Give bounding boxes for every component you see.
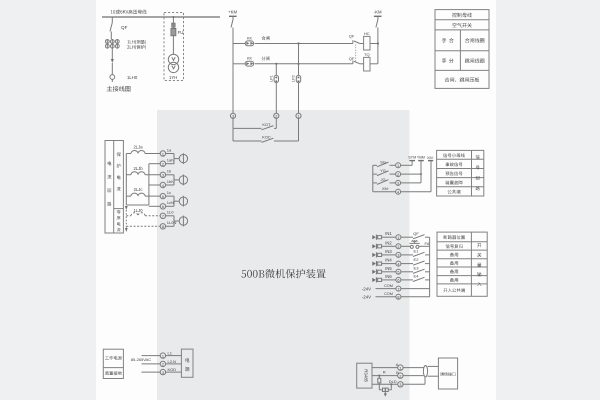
svg-text:-24V: -24V [362, 295, 371, 300]
svg-text:L1: L1 [168, 351, 173, 356]
svg-text:1: 1 [297, 115, 299, 119]
svg-text:SG: SG [380, 159, 386, 164]
svg-text:JG: JG [380, 177, 385, 182]
svg-text:4: 4 [397, 191, 399, 195]
svg-text:2: 2 [399, 374, 401, 378]
svg-text:1: 1 [397, 164, 399, 168]
svg-text:7: 7 [397, 287, 399, 291]
svg-text:2: 2 [397, 245, 399, 249]
svg-text:-24V: -24V [362, 286, 371, 291]
svg-text:E4: E4 [414, 274, 420, 279]
svg-text:1a: 1a [167, 147, 172, 152]
svg-text:QF: QF [349, 56, 355, 61]
svg-text:1L0: 1L0 [167, 210, 174, 215]
svg-text:FU: FU [178, 30, 184, 35]
svg-text:1aN: 1aN [167, 158, 174, 163]
svg-text:E3: E3 [414, 265, 420, 270]
svg-text:XM·: XM· [382, 186, 389, 191]
svg-text:+KM: +KM [228, 9, 237, 14]
svg-text:LP2: LP2 [292, 75, 296, 82]
svg-text:3: 3 [162, 371, 164, 375]
svg-text:1bN: 1bN [167, 179, 174, 184]
svg-text:IN3: IN3 [385, 249, 392, 254]
svg-text:4: 4 [397, 262, 399, 266]
svg-text:TQ: TQ [364, 52, 370, 57]
svg-text:2: 2 [162, 363, 164, 367]
svg-text:L2.N: L2.N [168, 359, 177, 364]
svg-text:LP1: LP1 [269, 75, 273, 82]
svg-text:1: 1 [162, 152, 164, 156]
svg-text:7: 7 [162, 215, 164, 219]
svg-text:3: 3 [162, 174, 164, 178]
svg-text:8: 8 [162, 225, 164, 229]
svg-text:KOT: KOT [262, 122, 271, 127]
svg-text:E1: E1 [414, 249, 420, 254]
svg-text:3: 3 [397, 254, 399, 258]
svg-text:YBM: YBM [417, 156, 425, 160]
svg-text:HC: HC [364, 31, 370, 36]
svg-text:XM·: XM· [427, 156, 434, 160]
svg-text:IN1: IN1 [385, 231, 392, 236]
svg-text:FA: FA [425, 241, 430, 246]
svg-text:B: B [396, 370, 399, 375]
svg-text:1b: 1b [167, 169, 172, 174]
svg-text:KOC: KOC [262, 134, 271, 139]
svg-text:2: 2 [397, 173, 399, 177]
svg-text:R: R [383, 370, 386, 375]
svg-text:A: A [396, 362, 399, 367]
svg-text:1LH0: 1LH0 [127, 75, 138, 80]
svg-text:3: 3 [399, 383, 401, 387]
svg-text:KK: KK [247, 36, 253, 40]
svg-text:1cN: 1cN [167, 200, 174, 205]
svg-text:YG: YG [380, 168, 386, 173]
svg-text:QF: QF [349, 33, 355, 38]
svg-text:COM: COM [384, 284, 393, 288]
svg-text:6: 6 [162, 205, 164, 209]
svg-text:DLD: DLD [389, 379, 397, 384]
svg-text:SYM: SYM [408, 156, 416, 160]
svg-text:2LJc: 2LJc [134, 187, 143, 192]
svg-text:2: 2 [275, 115, 277, 119]
svg-text:QF: QF [121, 25, 128, 30]
svg-text:2LJb: 2LJb [133, 166, 143, 171]
svg-text:1c: 1c [167, 190, 171, 195]
svg-text:KOD: KOD [168, 367, 177, 372]
svg-text:1: 1 [397, 236, 399, 240]
svg-text:COM: COM [384, 292, 393, 296]
svg-text:4: 4 [162, 184, 164, 188]
svg-text:5: 5 [162, 195, 164, 199]
svg-text:E2: E2 [414, 257, 420, 262]
svg-text:KK: KK [247, 57, 253, 61]
svg-text:85-265VAC: 85-265VAC [131, 357, 151, 362]
svg-text:1: 1 [399, 366, 401, 370]
svg-text:2: 2 [162, 163, 164, 167]
svg-text:IN2: IN2 [385, 240, 392, 245]
svg-text:8: 8 [397, 296, 399, 300]
svg-text:IN4: IN4 [385, 258, 392, 263]
svg-text:1: 1 [162, 354, 164, 358]
svg-text:RS485: RS485 [363, 369, 368, 382]
svg-text:IN6: IN6 [385, 274, 392, 279]
svg-text:3: 3 [232, 115, 234, 119]
svg-text:-KM: -KM [374, 9, 382, 14]
svg-text:IN5: IN5 [385, 266, 392, 271]
svg-text:2LJa: 2LJa [133, 145, 143, 150]
svg-text:1YH: 1YH [169, 75, 177, 80]
svg-text:6: 6 [397, 279, 399, 283]
svg-text:3: 3 [397, 182, 399, 186]
svg-text:QF: QF [413, 231, 419, 236]
svg-text:5: 5 [397, 271, 399, 275]
